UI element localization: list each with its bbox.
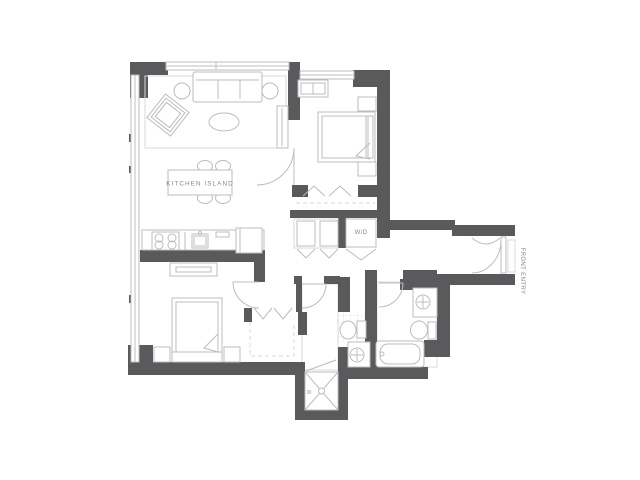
bathroom-a-tile-floor xyxy=(302,284,338,370)
closet-outline-dashed xyxy=(250,322,294,356)
bedroom-1-window xyxy=(300,71,354,79)
kitchen-sink-icon xyxy=(192,232,208,249)
nightstand xyxy=(358,97,376,111)
dresser xyxy=(170,263,217,276)
front-door-arc xyxy=(472,240,501,273)
kitchen-island-label: KITCHEN ISLAND xyxy=(166,181,234,188)
side-table-left xyxy=(174,83,190,99)
toilet-icon xyxy=(340,321,366,339)
living-room xyxy=(145,72,288,148)
bathtub-icon xyxy=(376,341,424,367)
stove-icon xyxy=(152,232,179,250)
refrigerator-icon xyxy=(236,228,262,253)
nightstand xyxy=(224,347,240,362)
shower-control-icon xyxy=(308,391,311,394)
bed xyxy=(318,112,375,162)
bedroom-2 xyxy=(154,263,294,362)
vanity-sink-icon xyxy=(348,342,370,367)
bed xyxy=(172,298,222,362)
bathroom-a xyxy=(302,284,370,410)
shower-door xyxy=(306,360,336,371)
counter-accessory xyxy=(216,232,229,237)
shower xyxy=(305,360,338,410)
front-entry-label: FRONT ENTRY xyxy=(519,248,525,295)
living-room-window xyxy=(166,62,289,70)
bedroom-2-closet xyxy=(250,308,294,356)
sofa xyxy=(193,72,262,102)
shower-drain-icon xyxy=(319,388,325,394)
bathroom-b-door-arc xyxy=(379,283,403,307)
washer-dryer-label: W/D xyxy=(355,230,368,236)
side-table-right xyxy=(262,83,278,99)
bathroom-a-door-arc xyxy=(302,284,326,308)
kitchen-island-group: KITCHEN ISLAND xyxy=(166,161,234,204)
bedroom-2-door-arc xyxy=(233,282,259,308)
vanity-sink-icon xyxy=(413,288,437,317)
bedroom-1-door-arc xyxy=(257,148,294,185)
floor-plan-page: KITCHEN ISLAND xyxy=(0,0,640,480)
nightstand xyxy=(358,162,376,176)
coffee-table xyxy=(209,113,239,131)
toilet-icon xyxy=(411,321,437,339)
entry-closet-arc xyxy=(472,238,500,244)
accent-chair xyxy=(147,94,189,136)
media-console xyxy=(277,106,288,148)
nightstand xyxy=(154,347,170,362)
front-door-leaf xyxy=(501,237,506,273)
bedroom-1 xyxy=(257,80,376,203)
door-jamb xyxy=(508,240,515,272)
washer-dryer-closet: W/D xyxy=(346,219,376,260)
hall: W/D xyxy=(294,219,376,260)
front-entry: FRONT ENTRY xyxy=(472,237,525,294)
dresser xyxy=(298,80,328,97)
floor-plan: KITCHEN ISLAND xyxy=(0,0,640,480)
left-window-wall xyxy=(131,75,139,362)
kitchen: KITCHEN ISLAND xyxy=(142,161,264,254)
hall-closet xyxy=(294,219,338,258)
